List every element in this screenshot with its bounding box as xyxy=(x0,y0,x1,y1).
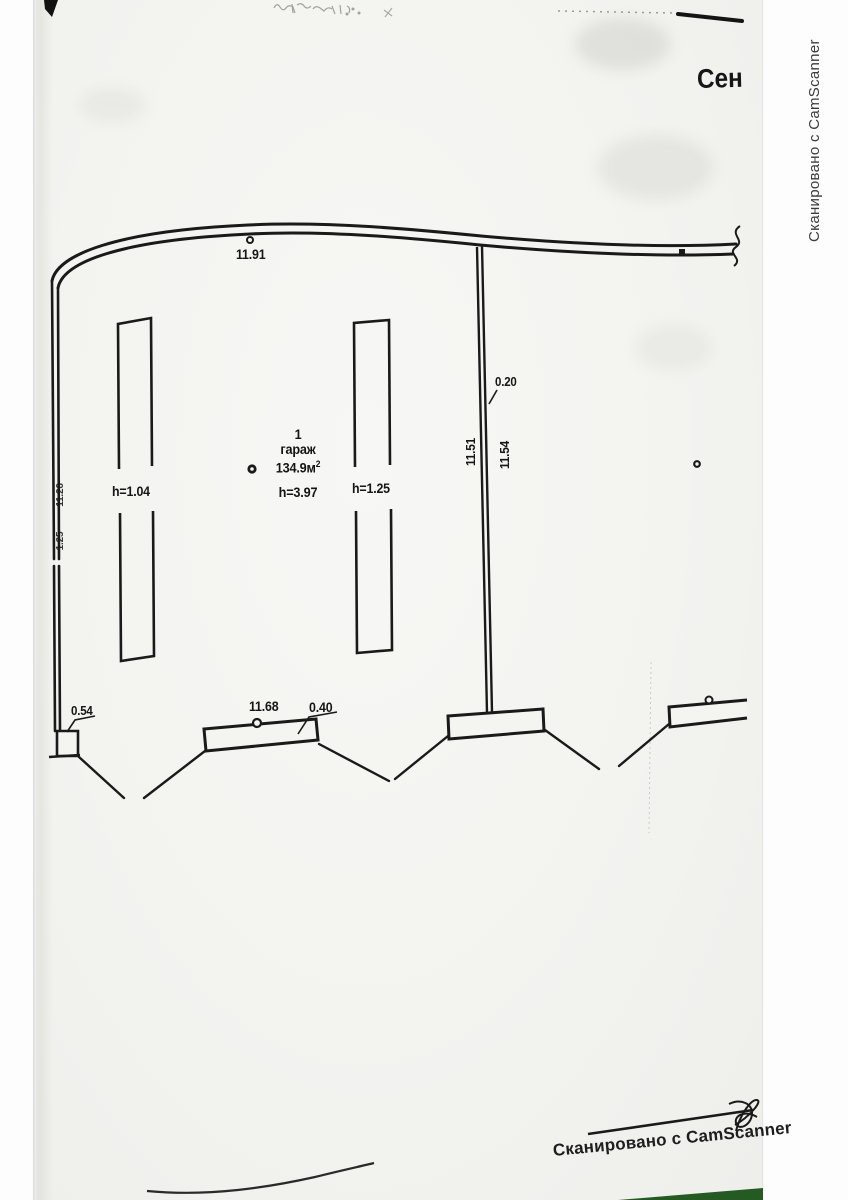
survey-point-icon xyxy=(706,697,713,704)
fence-double-line xyxy=(477,246,492,713)
room-height: h=3.97 xyxy=(259,485,338,500)
handwriting-marks xyxy=(274,4,392,17)
dim-top-length: 11.91 xyxy=(236,247,265,262)
floor-plan-drawing xyxy=(0,0,848,1200)
scanned-document: { "page": { "header_partial": "Сен", "wa… xyxy=(0,0,848,1200)
paper-crease xyxy=(649,662,651,833)
camscanner-watermark-side: Сканировано с CamScanner xyxy=(806,22,823,242)
dim-corner-box: 0.54 xyxy=(71,704,93,718)
room-number: 1 xyxy=(259,427,338,442)
diagonal-lines xyxy=(79,724,669,798)
dim-fence-thickness: 0.20 xyxy=(495,375,517,389)
survey-point-icon xyxy=(247,237,253,243)
room-name: гараж xyxy=(259,442,338,457)
dim-left-stall-height: h=1.04 xyxy=(112,484,150,499)
dim-fence-length-right: 11.54 xyxy=(498,436,512,474)
room-area: 134.9м2 xyxy=(259,457,338,476)
point-mark-icon xyxy=(679,249,685,254)
wall-break-symbol xyxy=(733,226,740,266)
dim-mid-stall-height: h=1.25 xyxy=(352,481,390,496)
leader-line-054 xyxy=(67,716,95,732)
survey-point-icon xyxy=(249,466,255,472)
dim-bottom-bar-width: 0.40 xyxy=(309,700,332,715)
bottom-bar-center xyxy=(448,709,544,739)
dim-left-wall-length: 11.26 xyxy=(54,479,66,511)
corner-box-outline xyxy=(57,731,78,756)
camscanner-green-bar xyxy=(618,1188,763,1200)
dim-fence-length-left: 11.51 xyxy=(464,433,478,471)
top-right-stroke xyxy=(678,14,742,21)
top-wall-double-line xyxy=(52,224,736,288)
scan-corner-artifact xyxy=(44,0,58,17)
survey-point-icon xyxy=(694,461,700,467)
dim-left-wall-offset: 1.25 xyxy=(54,527,66,556)
leader-line-020 xyxy=(489,390,497,404)
scan-stage: 11.91 11.26 1.25 h=1.04 1 гараж 134.9м2 … xyxy=(0,0,848,1200)
dim-bottom-bar-length: 11.68 xyxy=(249,699,278,714)
bottom-curve-line xyxy=(147,1163,374,1193)
room-label-block: 1 гараж 134.9м2 h=3.97 xyxy=(259,427,338,500)
dotted-mark xyxy=(558,11,674,13)
page-title-partial: Сен xyxy=(697,63,744,95)
survey-point-icon xyxy=(253,719,261,727)
